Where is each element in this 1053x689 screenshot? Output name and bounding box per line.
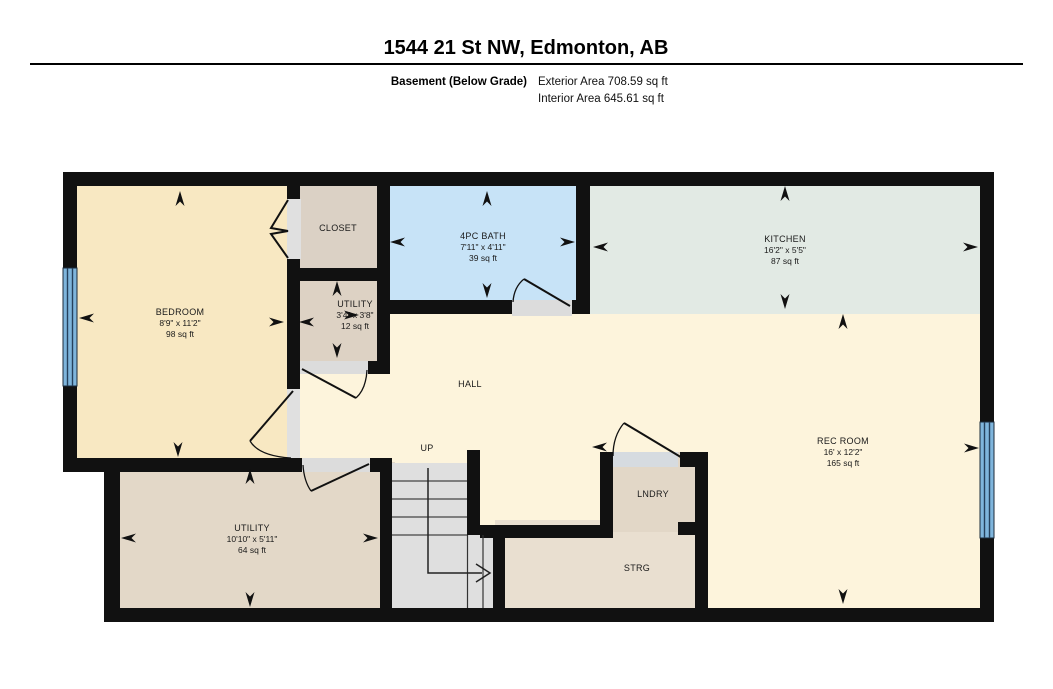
utility-small-area: 12 sq ft [341, 321, 370, 331]
floorplan-page: 1544 21 St NW, Edmonton, AB Basement (Be… [0, 0, 1053, 689]
wall-storage-left [493, 525, 505, 622]
utility-large-area: 64 sq ft [238, 545, 267, 555]
page-title: 1544 21 St NW, Edmonton, AB [384, 37, 669, 59]
rec-room-area: 165 sq ft [827, 458, 860, 468]
wall-bath-kitchen [576, 186, 590, 314]
laundry-name: LNDRY [637, 489, 669, 499]
wall-storage-top [480, 525, 613, 538]
room-floors [70, 178, 986, 615]
utility-large-dims: 10'10" x 5'11" [227, 534, 278, 544]
wall-stairs-left [380, 458, 392, 608]
wall-laundry-stub-bottom-left [600, 522, 613, 535]
storage-name: STRG [624, 563, 650, 573]
window-left-glass [63, 268, 77, 386]
utility-large-name: UTILITY [234, 523, 270, 533]
opening-closet [287, 199, 301, 259]
header: 1544 21 St NW, Edmonton, AB Basement (Be… [30, 37, 1023, 105]
header-divider [30, 63, 1023, 65]
wall-outer-left-lower [104, 458, 120, 622]
hall-name: HALL [458, 379, 482, 389]
bath-dims: 7'11" x 4'11" [460, 242, 505, 252]
floorplan-canvas: 1544 21 St NW, Edmonton, AB Basement (Be… [0, 0, 1053, 689]
closet-name: CLOSET [319, 223, 357, 233]
wall-stairs-right [467, 450, 480, 535]
wall-outer-right [980, 172, 994, 622]
bedroom-dims: 8'9" x 11'2" [159, 318, 200, 328]
stairs-up-label: UP [420, 443, 433, 453]
utility-small-name: UTILITY [337, 299, 373, 309]
wall-outer-top [63, 172, 994, 186]
hall-label-group: HALL [458, 379, 482, 389]
interior-area: Interior Area 645.61 sq ft [538, 93, 665, 105]
wall-outer-bottom [104, 608, 994, 622]
wall-laundry-stub-bottom-right [678, 522, 708, 535]
closet-label-group: CLOSET [319, 223, 357, 233]
bedroom-name: BEDROOM [156, 307, 205, 317]
rec-room-dims: 16' x 12'2" [824, 447, 863, 457]
exterior-area: Exterior Area 708.59 sq ft [538, 76, 669, 88]
window-right-glass [980, 422, 994, 538]
opening-bedroom [287, 389, 300, 458]
wall-closet-bottom [287, 268, 390, 281]
laundry-label-group: LNDRY [637, 489, 669, 499]
kitchen-area: 87 sq ft [771, 256, 800, 266]
opening-laundry [613, 452, 678, 467]
bedroom-area: 98 sq ft [166, 329, 195, 339]
storage-label-group: STRG [624, 563, 650, 573]
opening-utility-large [302, 458, 370, 472]
kitchen-name: KITCHEN [764, 234, 806, 244]
bath-name: 4PC BATH [460, 231, 506, 241]
floor-label: Basement (Below Grade) [391, 76, 527, 88]
window-left [63, 268, 77, 386]
bath-area: 39 sq ft [469, 253, 498, 263]
kitchen-dims: 16'2" x 5'5" [764, 245, 806, 255]
wall-laundry-stub-top [680, 452, 708, 467]
rec-room-name: REC ROOM [817, 436, 869, 446]
window-right [980, 422, 994, 538]
stairs-label-group: UP [420, 443, 433, 453]
opening-utility-small [300, 361, 368, 374]
